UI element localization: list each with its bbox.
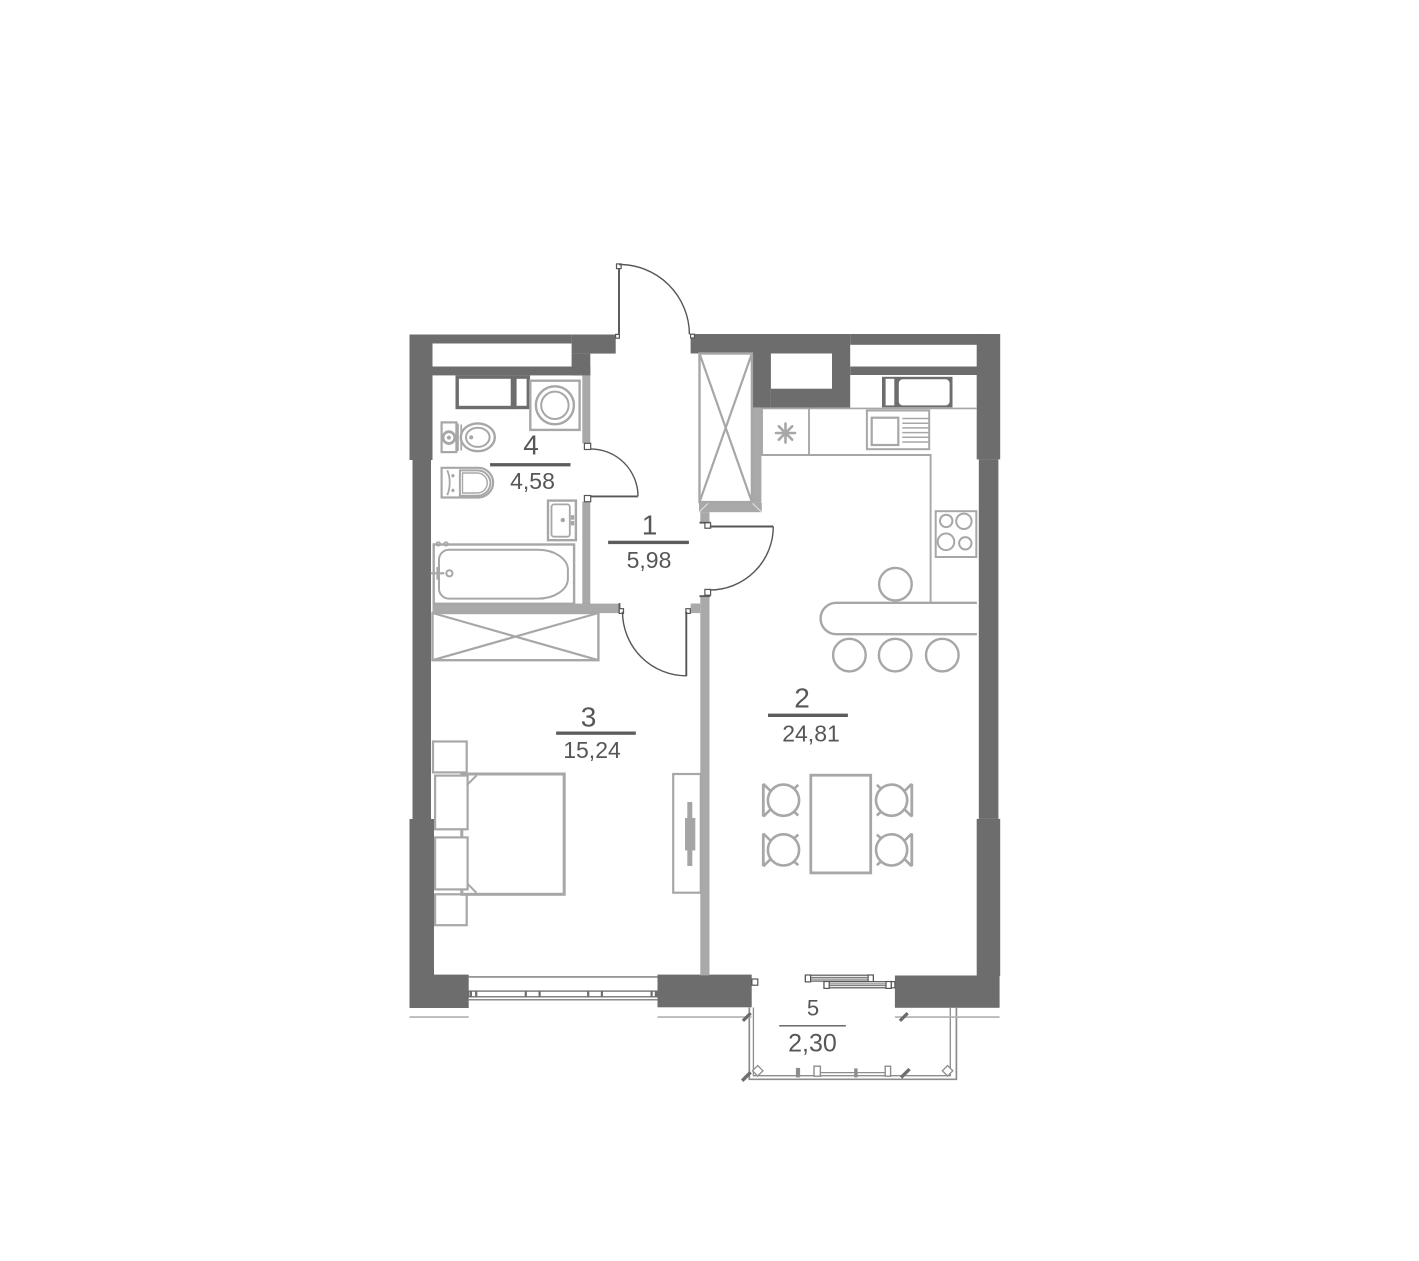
svg-text:4,58: 4,58 (510, 468, 555, 494)
svg-text:4: 4 (523, 430, 539, 461)
svg-text:5,98: 5,98 (627, 547, 672, 573)
svg-text:2,30: 2,30 (788, 1030, 837, 1058)
svg-text:15,24: 15,24 (563, 737, 621, 763)
svg-text:1: 1 (642, 510, 658, 541)
svg-text:2: 2 (794, 683, 810, 714)
svg-text:24,81: 24,81 (782, 721, 840, 747)
svg-text:3: 3 (581, 702, 597, 733)
svg-text:5: 5 (807, 995, 819, 1020)
